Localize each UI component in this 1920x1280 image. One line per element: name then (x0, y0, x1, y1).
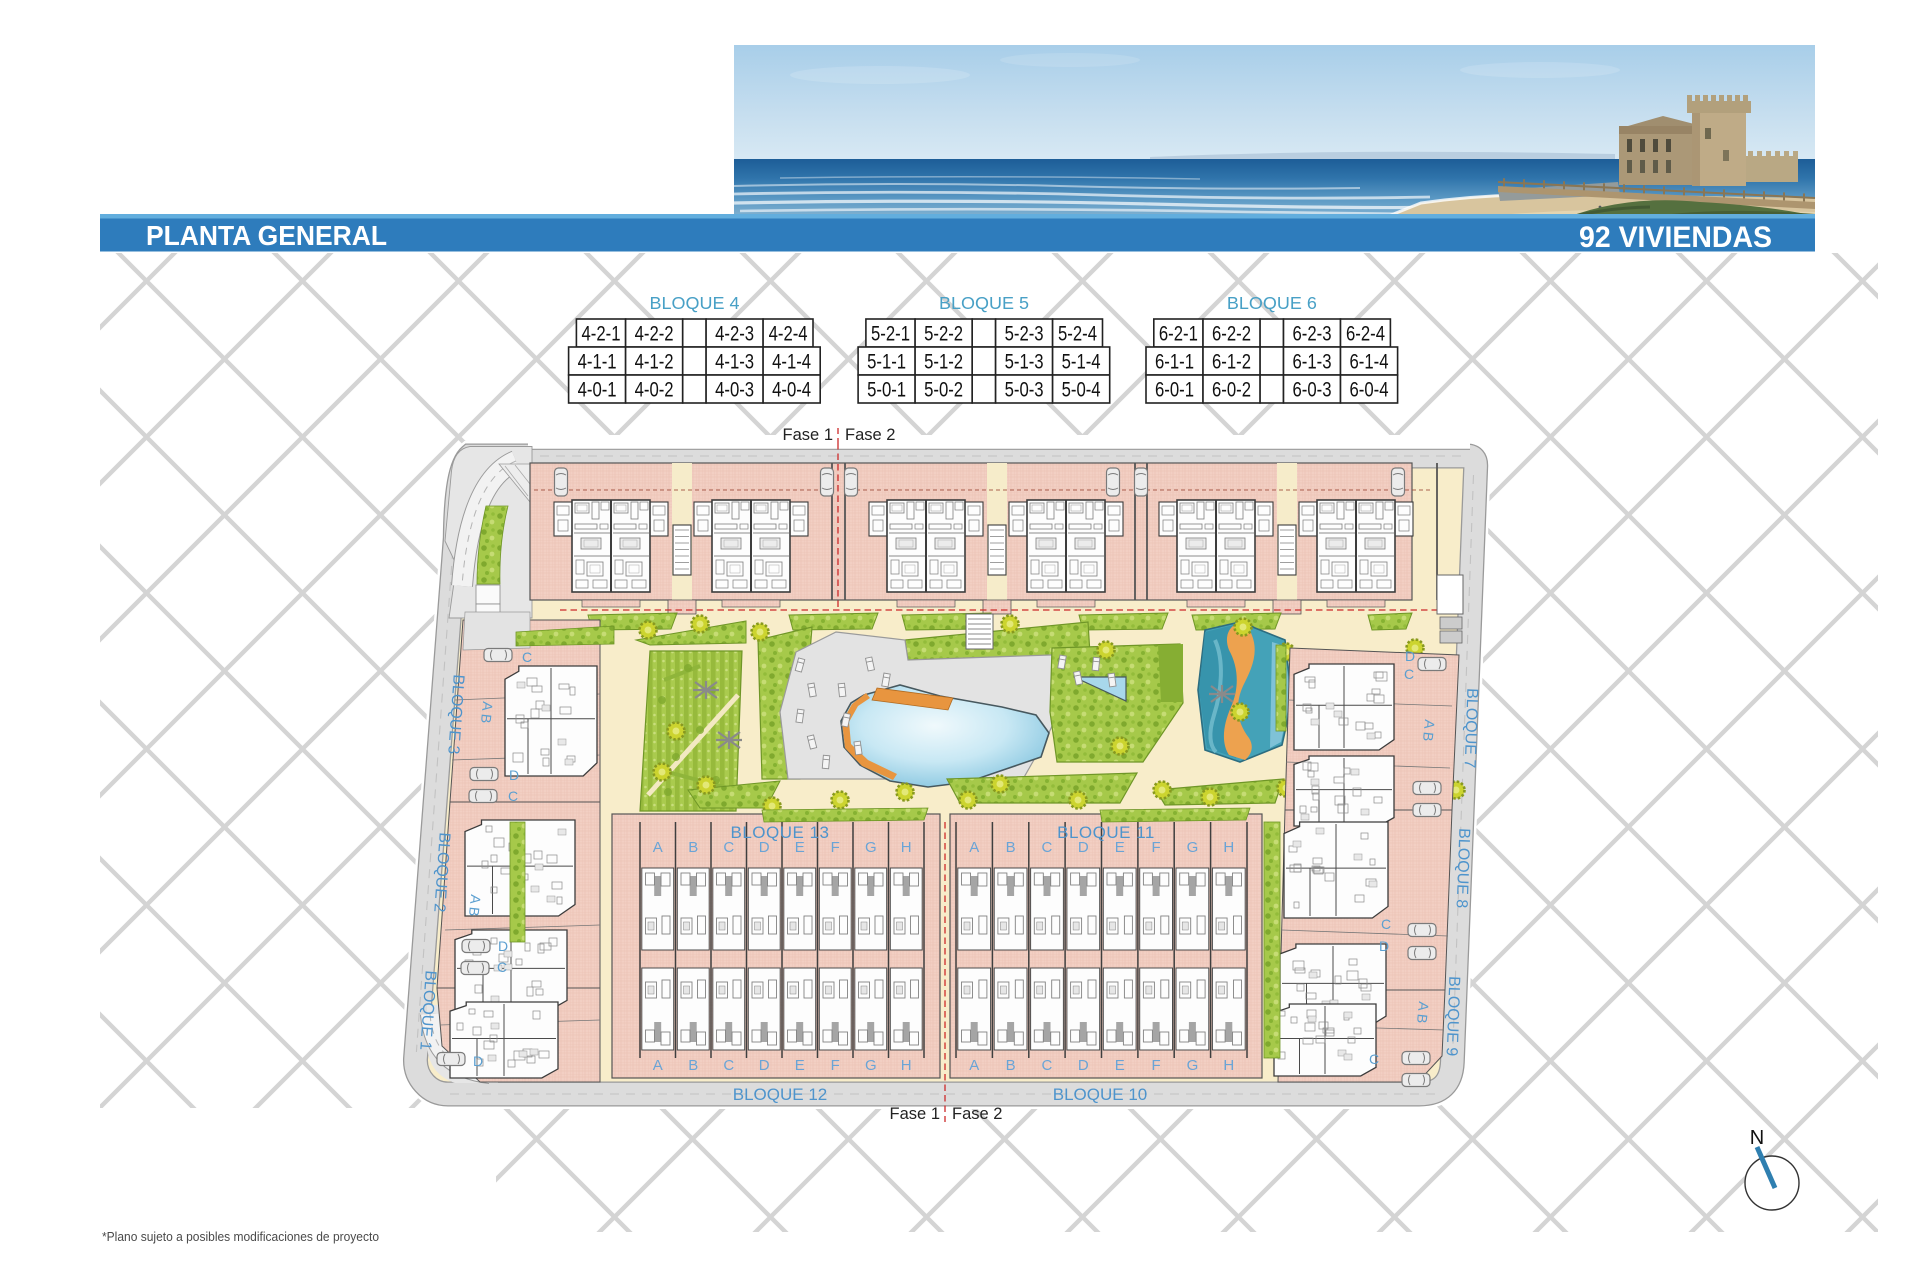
svg-text:F: F (831, 839, 840, 856)
svg-text:H: H (1223, 1057, 1234, 1074)
svg-text:Fase 2: Fase 2 (952, 1105, 1002, 1123)
svg-text:C: C (497, 959, 507, 975)
svg-text:BLOQUE 5: BLOQUE 5 (939, 293, 1029, 313)
svg-text:6-1-3: 6-1-3 (1293, 351, 1332, 374)
svg-text:H: H (901, 839, 912, 856)
svg-text:6-1-2: 6-1-2 (1212, 351, 1251, 374)
svg-text:6-0-4: 6-0-4 (1350, 379, 1389, 402)
svg-text:5-0-2: 5-0-2 (924, 379, 963, 402)
svg-text:BLOQUE 11: BLOQUE 11 (1057, 823, 1155, 842)
svg-text:C: C (1041, 1057, 1052, 1074)
svg-text:6-2-3: 6-2-3 (1293, 323, 1332, 346)
svg-text:Fase 1: Fase 1 (890, 1105, 940, 1123)
svg-text:E: E (1115, 1057, 1125, 1074)
svg-text:G: G (1187, 1057, 1199, 1074)
svg-text:C: C (723, 1057, 734, 1074)
svg-text:A B: A B (1414, 1001, 1432, 1024)
svg-text:4-2-4: 4-2-4 (769, 323, 808, 346)
svg-text:4-0-3: 4-0-3 (715, 379, 754, 402)
svg-text:A: A (653, 1057, 663, 1074)
svg-text:BLOQUE 6: BLOQUE 6 (1227, 293, 1317, 313)
svg-text:A B: A B (478, 701, 496, 724)
svg-text:C: C (1369, 1051, 1379, 1067)
svg-text:5-0-1: 5-0-1 (867, 379, 906, 402)
svg-text:4-0-2: 4-0-2 (635, 379, 674, 402)
svg-text:6-2-2: 6-2-2 (1212, 323, 1251, 346)
svg-text:BLOQUE 13: BLOQUE 13 (731, 823, 830, 842)
svg-text:G: G (1187, 839, 1199, 856)
svg-text:4-2-2: 4-2-2 (635, 323, 674, 346)
svg-text:6-2-4: 6-2-4 (1346, 323, 1385, 346)
svg-text:D: D (1078, 1057, 1089, 1074)
svg-text:6-2-1: 6-2-1 (1159, 323, 1198, 346)
svg-text:D: D (759, 1057, 770, 1074)
svg-text:D: D (1405, 648, 1415, 664)
svg-text:G: G (865, 1057, 877, 1074)
svg-text:H: H (901, 1057, 912, 1074)
svg-text:4-2-1: 4-2-1 (582, 323, 621, 346)
svg-text:92 VIVIENDAS: 92 VIVIENDAS (1579, 221, 1772, 254)
svg-text:Fase 1: Fase 1 (783, 426, 833, 444)
svg-text:BLOQUE 8: BLOQUE 8 (1453, 828, 1473, 909)
svg-text:Fase 2: Fase 2 (845, 426, 895, 444)
svg-text:5-1-2: 5-1-2 (924, 351, 963, 374)
svg-text:6-1-4: 6-1-4 (1350, 351, 1389, 374)
svg-text:D: D (1379, 938, 1389, 954)
svg-text:BLOQUE 7: BLOQUE 7 (1461, 688, 1481, 769)
svg-text:D: D (498, 938, 508, 954)
svg-text:5-1-4: 5-1-4 (1062, 351, 1101, 374)
svg-text:BLOQUE 12: BLOQUE 12 (733, 1085, 828, 1104)
svg-text:BLOQUE 9: BLOQUE 9 (1443, 976, 1463, 1057)
svg-text:BLOQUE 4: BLOQUE 4 (650, 293, 740, 313)
svg-text:F: F (1152, 1057, 1161, 1074)
svg-text:6-1-1: 6-1-1 (1155, 351, 1194, 374)
svg-text:PLANTA GENERAL: PLANTA GENERAL (146, 220, 387, 251)
svg-text:D: D (473, 1053, 483, 1069)
svg-text:H: H (1223, 839, 1234, 856)
svg-text:4-1-3: 4-1-3 (715, 351, 754, 374)
svg-text:5-2-4: 5-2-4 (1058, 323, 1097, 346)
svg-text:4-2-3: 4-2-3 (715, 323, 754, 346)
svg-text:5-2-3: 5-2-3 (1005, 323, 1044, 346)
svg-text:B: B (688, 839, 698, 856)
svg-text:B: B (1006, 1057, 1016, 1074)
svg-text:5-1-3: 5-1-3 (1005, 351, 1044, 374)
svg-text:5-0-3: 5-0-3 (1005, 379, 1044, 402)
svg-text:N: N (1750, 1127, 1764, 1149)
svg-text:4-1-2: 4-1-2 (635, 351, 674, 374)
svg-text:4-1-4: 4-1-4 (772, 351, 811, 374)
svg-text:C: C (1404, 666, 1414, 682)
svg-text:5-1-1: 5-1-1 (867, 351, 906, 374)
svg-text:C: C (1041, 839, 1052, 856)
svg-text:4-1-1: 4-1-1 (578, 351, 617, 374)
svg-text:A B: A B (1420, 719, 1438, 742)
svg-text:A: A (969, 839, 979, 856)
svg-text:5-2-1: 5-2-1 (871, 323, 910, 346)
svg-text:D: D (509, 767, 519, 783)
svg-text:B: B (1006, 839, 1016, 856)
svg-text:6-0-1: 6-0-1 (1155, 379, 1194, 402)
svg-text:BLOQUE 10: BLOQUE 10 (1053, 1085, 1148, 1104)
svg-text:4-0-4: 4-0-4 (772, 379, 811, 402)
svg-text:6-0-2: 6-0-2 (1212, 379, 1251, 402)
svg-text:A: A (969, 1057, 979, 1074)
svg-text:C: C (1381, 916, 1391, 932)
svg-text:B: B (688, 1057, 698, 1074)
svg-text:5-0-4: 5-0-4 (1062, 379, 1101, 402)
svg-text:F: F (831, 1057, 840, 1074)
svg-text:*Plano sujeto a posibles modif: *Plano sujeto a posibles modificaciones … (102, 1229, 379, 1244)
svg-text:A B: A B (466, 894, 484, 917)
svg-text:A: A (653, 839, 663, 856)
svg-text:5-2-2: 5-2-2 (924, 323, 963, 346)
svg-text:C: C (522, 649, 532, 665)
svg-text:6-0-3: 6-0-3 (1293, 379, 1332, 402)
svg-text:C: C (508, 788, 518, 804)
svg-text:4-0-1: 4-0-1 (578, 379, 617, 402)
svg-text:G: G (865, 839, 877, 856)
svg-text:E: E (795, 1057, 805, 1074)
